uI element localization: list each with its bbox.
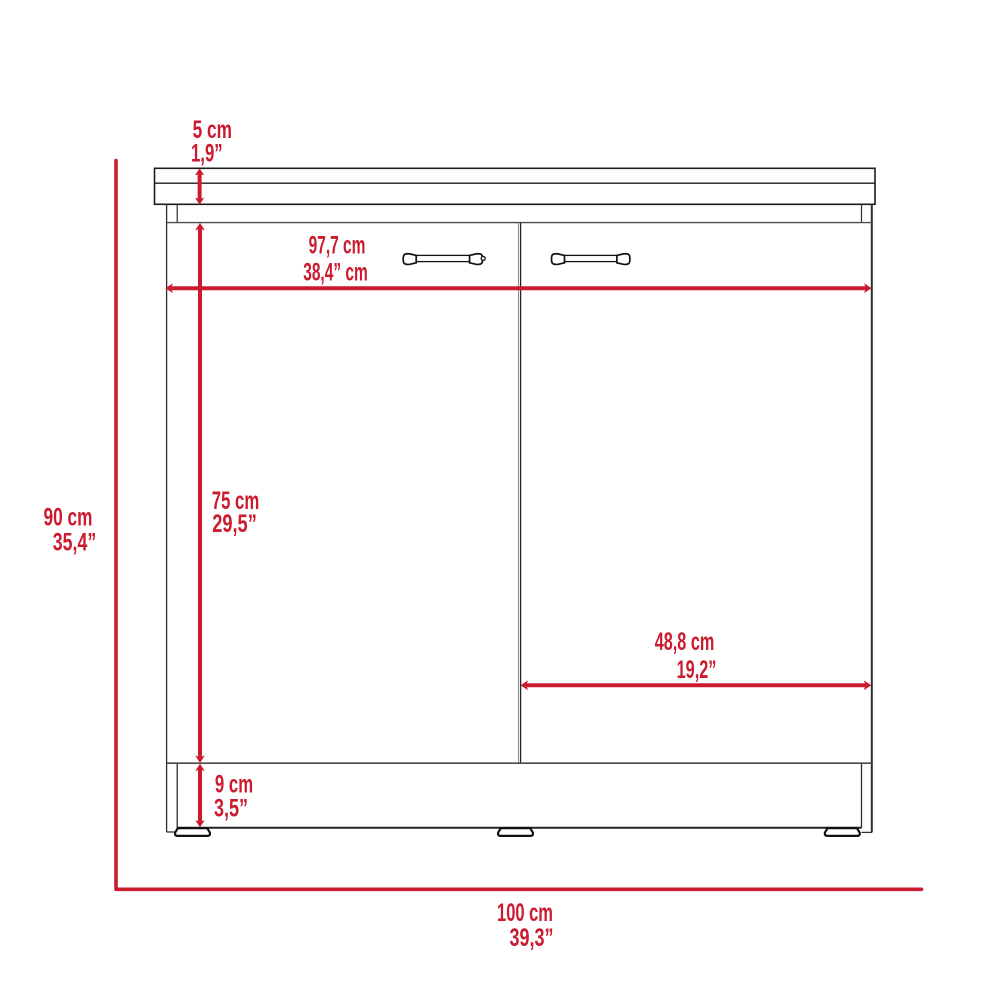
svg-text:29,5”: 29,5”: [212, 509, 257, 538]
svg-text:19,2”: 19,2”: [677, 657, 717, 684]
svg-text:39,3”: 39,3”: [509, 923, 553, 952]
svg-text:38,4” cm: 38,4” cm: [303, 259, 368, 287]
svg-text:1,9”: 1,9”: [191, 139, 223, 167]
svg-text:35,4”: 35,4”: [53, 527, 96, 556]
svg-text:3,5”: 3,5”: [214, 794, 248, 823]
svg-text:97,7 cm: 97,7 cm: [309, 232, 366, 260]
svg-text:48,8 cm: 48,8 cm: [655, 629, 715, 656]
